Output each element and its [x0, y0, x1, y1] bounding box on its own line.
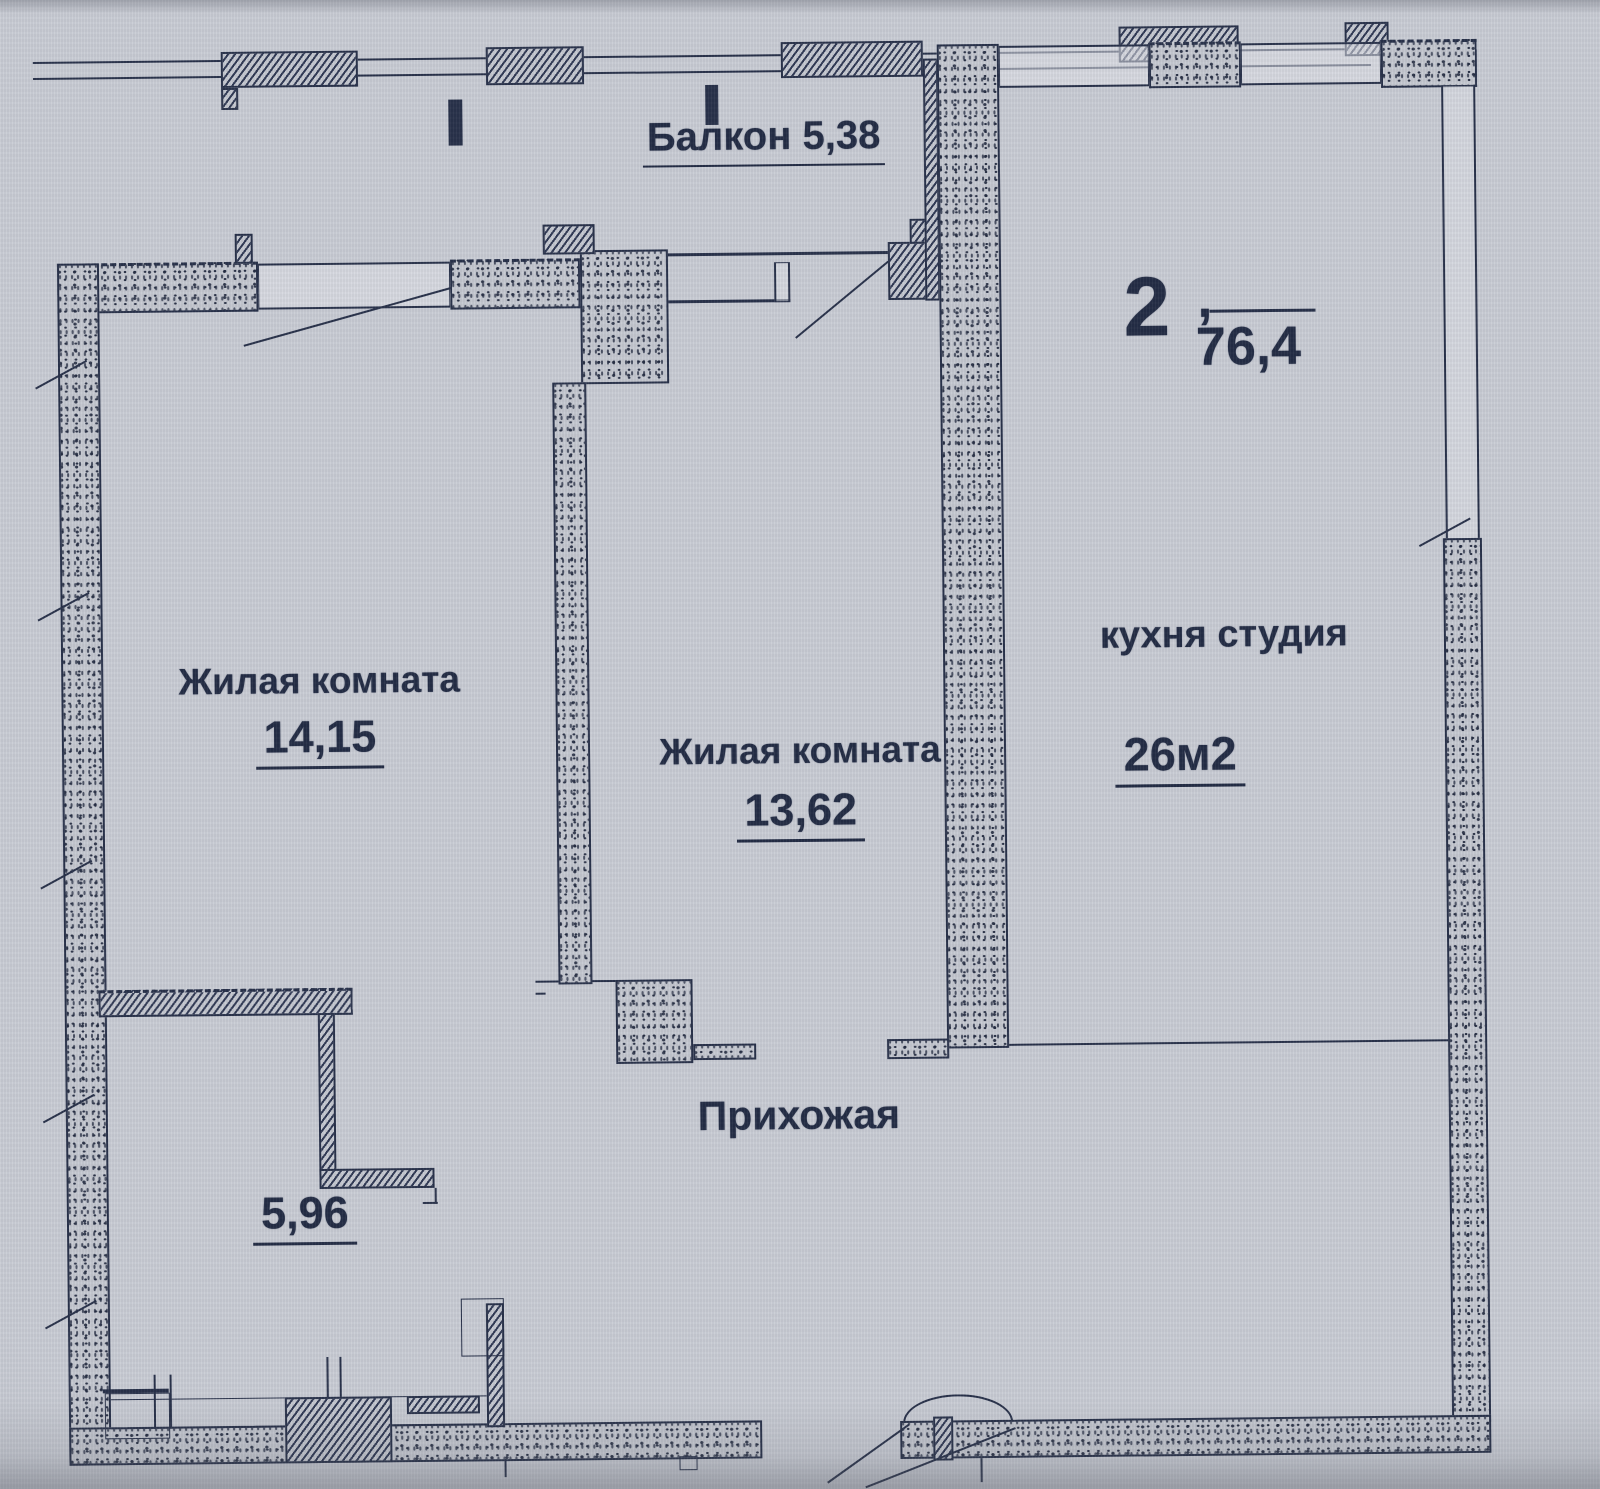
entry-cabinet-box: [105, 1393, 170, 1440]
section-mark-1: [448, 100, 462, 146]
kitchen-area-value: 26м2: [1115, 725, 1245, 787]
right-wall-lower: [1443, 538, 1491, 1422]
bath-step-line-h: [423, 1202, 438, 1204]
hallway-name: Прихожая: [644, 1090, 954, 1140]
balcony-railing-pier-3: [781, 41, 923, 78]
balcony-glazing-top-line: [668, 251, 890, 256]
balcony-glazing-bottom-line: [668, 299, 790, 303]
bottom-wall-mark: [679, 1456, 697, 1470]
living1-area: 14,15: [160, 709, 481, 770]
balcony-area: 5,38: [802, 113, 880, 158]
entrance-tick: [980, 1458, 982, 1482]
apartment-total-area: 76,4: [1196, 315, 1302, 378]
entry-hatch-wall-a: [285, 1396, 393, 1463]
bottom-wall-tick: [504, 1459, 506, 1477]
leader-line-living2: [795, 261, 889, 339]
apartment-rooms-count: 2: [1123, 258, 1171, 355]
floor-plan-photo: Балкон 5,38 2 , 76,4 Жилая комната 14,15…: [0, 0, 1600, 1489]
kitchen-hallway-boundary-line: [1009, 1039, 1451, 1046]
balcony-door-frame: [774, 262, 790, 302]
kitchen-window-1: [999, 44, 1149, 88]
entry-doorframe-line-2: [339, 1357, 341, 1397]
window-living1: [258, 262, 450, 310]
entrance-door-arc: [903, 1394, 1013, 1423]
room-door-mark-small: [536, 993, 546, 995]
entry-bold-line: [103, 1389, 169, 1394]
balcony-railing-pier-1: [221, 51, 358, 88]
balcony-name: Балкон: [647, 114, 792, 160]
entry-small-box: [461, 1298, 505, 1356]
balcony-label: Балкон 5,38: [613, 113, 914, 168]
bath-wall-top: [99, 988, 353, 1018]
hallway-wall-stub: [693, 1043, 756, 1060]
kitchen-top-wall-mid: [1149, 41, 1241, 88]
kitchen-top-wall-corner: [1381, 39, 1477, 88]
pylon-between-rooms: [580, 249, 669, 384]
entry-hatch-wall-b: [407, 1395, 480, 1414]
wall-corner-hatch-small: [235, 234, 253, 264]
apartment-fraction-line: [1209, 309, 1315, 313]
bath-wall-right: [318, 1013, 337, 1175]
room-door-mark-left: [535, 981, 558, 983]
pylon-cap-hatch: [543, 224, 595, 255]
kitchen-window-2: [1241, 42, 1381, 85]
bath-area-value: 5,96: [253, 1187, 357, 1246]
room-door-mark-right: [592, 980, 615, 982]
kitchen-area: 26м2: [1085, 725, 1276, 788]
hallway-wall-block: [615, 979, 693, 1064]
living2-area-value: 13,62: [736, 783, 865, 842]
living1-name: Жилая комната: [159, 658, 479, 703]
kitchen-wall-foot: [887, 1038, 949, 1059]
wall-top-left-b: [450, 258, 581, 309]
floor-plan: Балкон 5,38 2 , 76,4 Жилая комната 14,15…: [0, 0, 1600, 1489]
living1-area-value: 14,15: [255, 710, 384, 769]
wall-between-rooms: [552, 382, 592, 984]
living2-area: 13,62: [640, 782, 961, 843]
balcony-railing-pier-1-leg: [221, 88, 238, 110]
bath-area: 5,96: [205, 1186, 406, 1246]
kitchen-left-wall: [937, 44, 1010, 1049]
entry-doorframe-line-1: [326, 1357, 328, 1397]
balcony-label-underline: Балкон 5,38: [643, 113, 885, 168]
balcony-railing-pier-2: [486, 46, 584, 85]
right-wall-window: [1441, 85, 1480, 540]
kitchen-name: кухня студия: [1079, 612, 1369, 658]
living2-name: Жилая комната: [640, 728, 960, 773]
